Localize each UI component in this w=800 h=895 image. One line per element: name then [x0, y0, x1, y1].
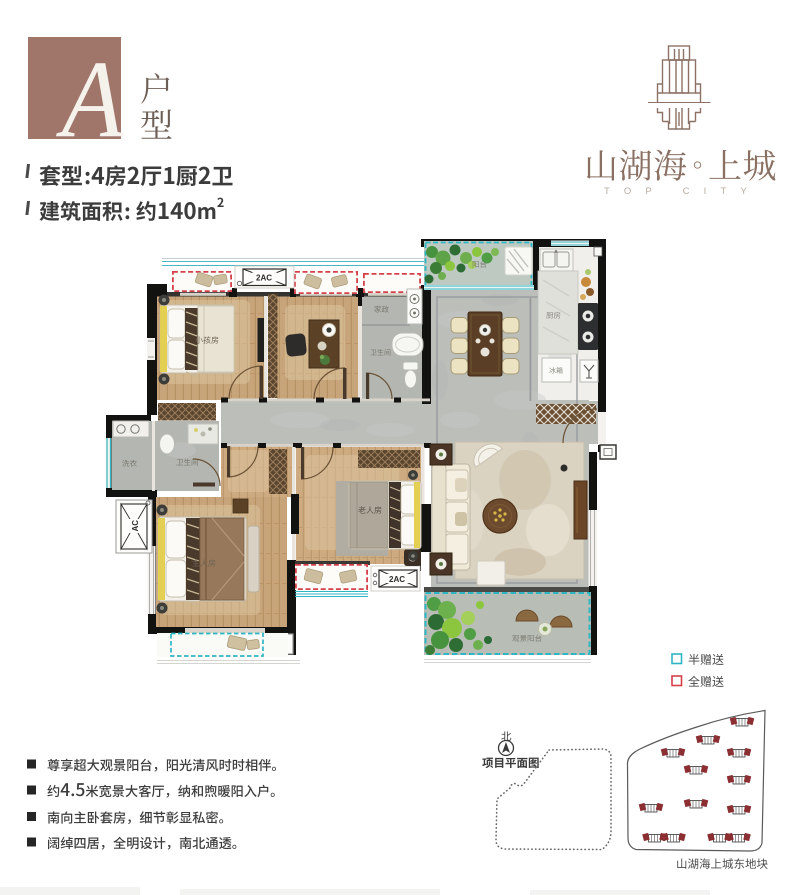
- svg-text:AC: AC: [131, 520, 140, 532]
- svg-text:A: A: [56, 38, 124, 160]
- svg-text:2AC: 2AC: [256, 274, 272, 283]
- svg-text:2AC: 2AC: [389, 575, 405, 584]
- svg-text:TOP CITY: TOP CITY: [604, 186, 761, 197]
